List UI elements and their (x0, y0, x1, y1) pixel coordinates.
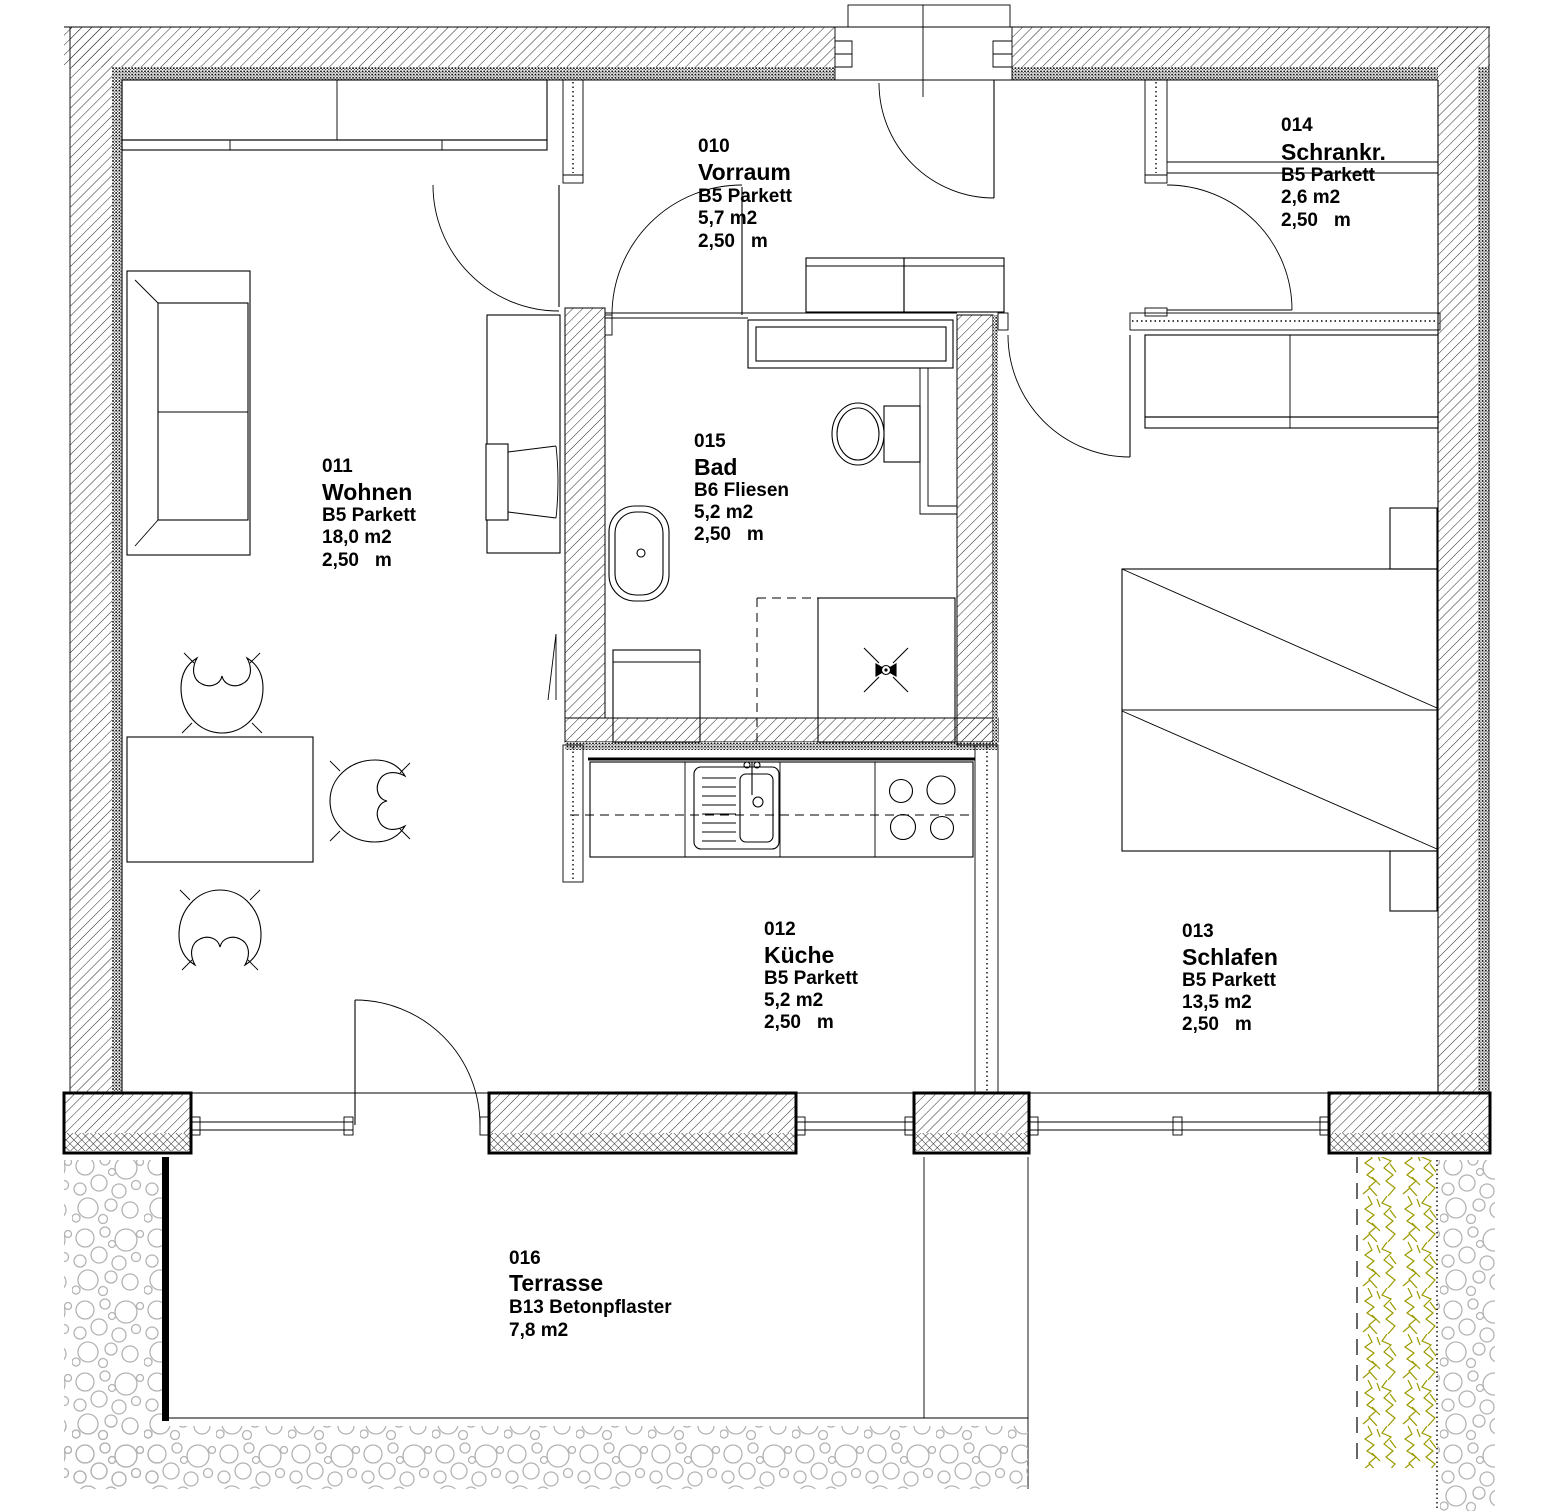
room-id: 016 (509, 1248, 541, 1269)
schlafen-furniture (1122, 335, 1438, 911)
wall-left-hatch (70, 27, 112, 1093)
wall-bad-right-insulation (993, 315, 998, 745)
kueche-fixtures (570, 759, 975, 857)
room-height: 2,50 m (322, 550, 392, 571)
room-area: 5,7 m2 (698, 208, 757, 229)
room-floor: B5 Parkett (764, 968, 859, 989)
cooktop (890, 776, 956, 840)
room-label-schrankraum: 014 Schrankr. B5 Parkett 2,6 m2 2,50 m (1281, 115, 1386, 231)
entrance-frame-right (993, 41, 1012, 67)
room-id: 011 (322, 456, 353, 477)
entrance-porch (848, 5, 1010, 27)
door-frame-schrankraum-top (1145, 175, 1167, 183)
wall-left-insulation (112, 67, 122, 1093)
terrace-garden (64, 1157, 1495, 1511)
room-label-bad: 015 Bad B6 Fliesen 5,2 m2 2,50 m (694, 431, 789, 545)
entrance-opening (835, 27, 1012, 97)
parapet-block-1 (64, 1093, 191, 1153)
room-label-vorraum: 010 Vorraum B5 Parkett 5,7 m2 2,50 m (698, 136, 793, 252)
terrace-door-swing (355, 1000, 480, 1125)
door-frame-schrankraum-bottom (1145, 308, 1167, 316)
door-schrankraum-swing (1167, 185, 1292, 310)
room-floor: B5 Parkett (1182, 970, 1277, 991)
dining-table (127, 737, 313, 862)
door-frame-wohnen (563, 175, 583, 183)
room-name: Terrasse (509, 1270, 603, 1296)
room-label-kueche: 012 Küche B5 Parkett 5,2 m2 2,50 m (764, 919, 859, 1033)
wall-bad-left (565, 308, 605, 718)
room-floor: B5 Parkett (698, 186, 793, 207)
room-height: 2,50 m (764, 1012, 834, 1033)
room-id: 013 (1182, 921, 1214, 942)
window-kueche-glazing (796, 1122, 914, 1130)
chair-1 (181, 653, 263, 733)
room-id: 015 (694, 431, 726, 452)
parapet-block-2 (489, 1093, 796, 1153)
room-id: 010 (698, 136, 730, 157)
washbasin (609, 506, 669, 601)
room-area: 5,2 m2 (764, 990, 823, 1011)
wall-bad-right (957, 315, 993, 745)
nightstand-2 (1390, 851, 1437, 911)
room-name: Schlafen (1182, 944, 1278, 970)
nightstand-1 (1390, 508, 1437, 569)
wall-right-insulation (1478, 67, 1489, 1093)
room-label-terrasse: 016 Terrasse B13 Betonpflaster 7,8 m2 (509, 1248, 672, 1341)
entrance-door (835, 5, 1012, 198)
chair-3 (179, 890, 261, 970)
wall-right-hatch (1438, 27, 1478, 1093)
gravel-bottom (64, 1426, 1028, 1489)
room-area: 13,5 m2 (1182, 992, 1252, 1013)
room-height: 2,50 m (694, 524, 764, 545)
kitchen-sink (694, 762, 779, 849)
door-schlafen-swing (1008, 335, 1130, 457)
room-floor: B5 Parkett (1281, 165, 1376, 186)
window-schlafen-glazing (1029, 1122, 1329, 1130)
terrace-edge-left (162, 1157, 169, 1421)
room-name: Schrankr. (1281, 139, 1386, 165)
bed (1122, 569, 1437, 851)
wall-top-left-insulation (122, 67, 835, 80)
floor-plan-drawing: 010 Vorraum B5 Parkett 5,7 m2 2,50 m 014… (0, 0, 1564, 1511)
exhaust-fan-symbol (864, 648, 908, 692)
door-wohnen-swing (433, 185, 559, 311)
wall-bad-top (605, 313, 957, 318)
hedge (1362, 1157, 1437, 1468)
chair-2 (330, 760, 410, 842)
room-name: Wohnen (322, 479, 412, 505)
wall-vorraum-schlafen-stub (998, 313, 1008, 330)
room-name: Vorraum (698, 159, 791, 185)
entrance-door-swing (879, 83, 994, 198)
wall-top-right-insulation (1012, 67, 1438, 80)
wall-top-right-hatch (1012, 27, 1490, 67)
room-floor: B6 Fliesen (694, 480, 789, 501)
entrance-frame-left (835, 41, 852, 67)
room-name: Küche (764, 942, 834, 968)
room-label-wohnen: 011 Wohnen B5 Parkett 18,0 m2 2,50 m (322, 456, 417, 571)
room-height: 2,50 m (698, 231, 768, 252)
gravel-right (1437, 1160, 1495, 1511)
wardrobe (1145, 335, 1438, 428)
kitchen-counter (590, 762, 973, 857)
room-floor: B13 Betonpflaster (509, 1297, 672, 1318)
radiator-symbol (548, 634, 556, 700)
room-area: 18,0 m2 (322, 527, 392, 548)
room-id: 014 (1281, 115, 1313, 136)
room-area: 2,6 m2 (1281, 187, 1340, 208)
room-label-schlafen: 013 Schlafen B5 Parkett 13,5 m2 2,50 m (1182, 921, 1278, 1035)
wall-bad-kueche-insulation (565, 742, 998, 750)
room-area: 5,2 m2 (694, 502, 753, 523)
room-id: 012 (764, 919, 796, 940)
tv-sideboard (486, 315, 560, 553)
parapet-block-4 (1329, 1093, 1490, 1153)
sofa (127, 271, 250, 555)
bad-fixtures (609, 320, 957, 742)
wall-bad-kueche (565, 718, 998, 742)
interior-walls (433, 80, 1440, 1093)
room-height: 2,50 m (1182, 1014, 1252, 1035)
window-wohnen-glazing (191, 1122, 353, 1130)
room-area: 7,8 m2 (509, 1320, 568, 1341)
room-name: Bad (694, 454, 737, 480)
wall-cabinet (122, 80, 547, 150)
wall-top-left-hatch (64, 27, 835, 67)
vorraum-cabinets (806, 258, 1004, 312)
room-floor: B5 Parkett (322, 505, 417, 526)
parapet-block-3 (914, 1093, 1029, 1153)
floor-plan-page: 010 Vorraum B5 Parkett 5,7 m2 2,50 m 014… (0, 0, 1564, 1511)
toilet (832, 403, 920, 465)
room-height: 2,50 m (1281, 210, 1351, 231)
